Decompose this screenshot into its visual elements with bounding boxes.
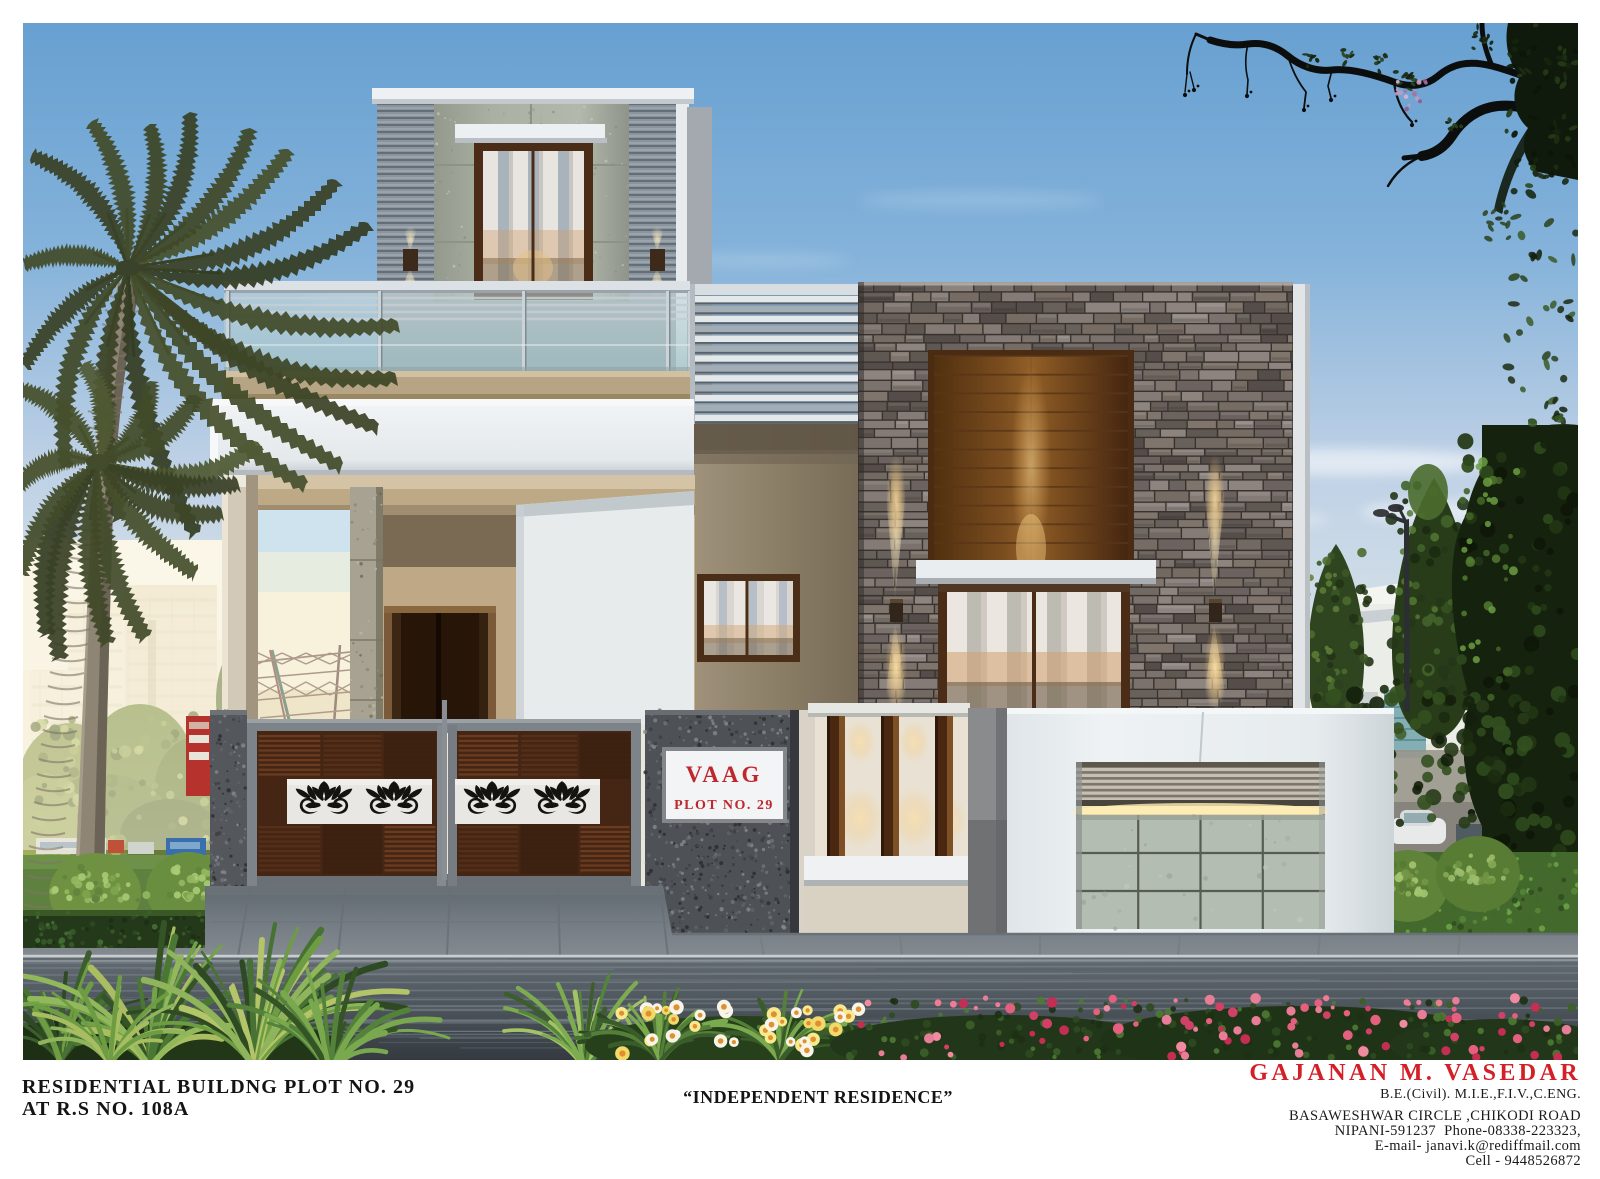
svg-text:VAAG: VAAG <box>686 762 763 787</box>
svg-text:AT R.S NO. 108A: AT R.S NO. 108A <box>22 1098 189 1120</box>
svg-text:BASAWESHWAR CIRCLE ,CHIKODI RO: BASAWESHWAR CIRCLE ,CHIKODI ROAD <box>1289 1108 1581 1124</box>
svg-text:“INDEPENDENT RESIDENCE”: “INDEPENDENT RESIDENCE” <box>683 1087 953 1107</box>
svg-text:B.E.(Civil). M.I.E.,F.I.V.,C.E: B.E.(Civil). M.I.E.,F.I.V.,C.ENG. <box>1380 1087 1581 1102</box>
svg-text:PLOT NO. 29: PLOT NO. 29 <box>674 798 774 813</box>
svg-text:NIPANI-591237 Phone-08338-223: NIPANI-591237 Phone-08338-223323, <box>1335 1123 1581 1139</box>
svg-text:GAJANAN M. VASEDAR: GAJANAN M. VASEDAR <box>1249 1060 1581 1086</box>
svg-text:Cell - 9448526872: Cell - 9448526872 <box>1465 1153 1581 1169</box>
svg-text:E-mail- janavi.k@rediffmail.co: E-mail- janavi.k@rediffmail.com <box>1375 1138 1582 1154</box>
svg-text:RESIDENTIAL BUILDNG PLOT NO. 2: RESIDENTIAL BUILDNG PLOT NO. 29 <box>22 1076 415 1098</box>
